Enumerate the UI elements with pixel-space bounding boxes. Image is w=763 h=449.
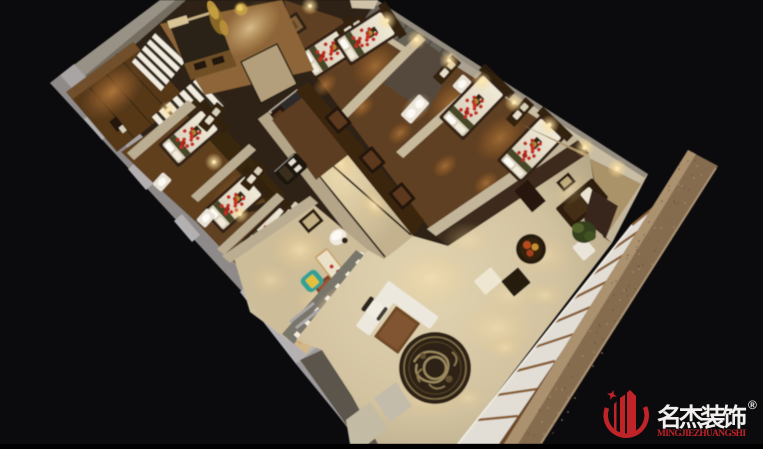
svg-text:MINGJIEZHUANGSHI: MINGJIEZHUANGSHI bbox=[657, 429, 746, 439]
svg-text:®: ® bbox=[748, 398, 757, 412]
svg-text:名杰装饰: 名杰装饰 bbox=[657, 403, 747, 432]
